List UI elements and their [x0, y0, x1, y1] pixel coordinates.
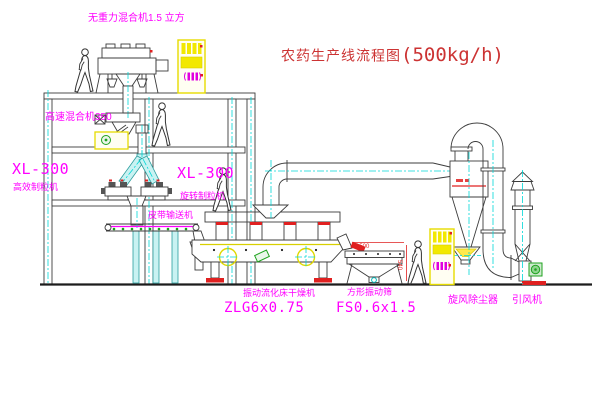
drawing-title: 农药生产线流程图(500kg/h) — [281, 46, 504, 65]
label-dryer-model: ZLG6x0.75 — [224, 301, 304, 315]
label-induced-draft-fan: 引风机 — [512, 296, 542, 306]
label-granulator-left-name: 高效制粒机 — [13, 183, 58, 192]
control-cabinet-top — [178, 40, 205, 93]
cad-process-drawing: 农药生产线流程图(500kg/h) 无重力混合机1.5 立方 高速混合机350 … — [0, 0, 600, 403]
dimension-sieve-height: 540 — [396, 260, 402, 270]
dimension-sieve-length: 1500 — [356, 244, 369, 250]
drawing-title-text: 农药生产线流程图 — [281, 48, 401, 64]
label-belt-conveyor: 皮带输送机 — [148, 211, 193, 220]
person-figure — [152, 103, 170, 146]
fluid-bed-dryer — [190, 205, 345, 283]
belt-conveyor — [105, 224, 205, 283]
person-figure — [408, 241, 426, 284]
discharge-chute — [127, 196, 146, 228]
label-sieve-model: FS0.6x1.5 — [336, 301, 416, 315]
drawing-title-capacity: (500kg/h) — [401, 44, 504, 66]
vibrating-sieve — [337, 234, 407, 284]
granulator-left — [101, 180, 131, 201]
cyclone-separator — [450, 123, 511, 278]
label-gravity-free-mixer: 无重力混合机1.5 立方 — [88, 14, 185, 24]
label-cyclone: 旋风除尘器 — [448, 296, 498, 306]
label-granulator-center-model: XL-300 — [177, 166, 234, 181]
label-sieve-name: 方形振动筛 — [347, 288, 392, 297]
control-cabinet-right — [430, 229, 454, 285]
label-granulator-center-name: 旋转制粒机 — [180, 192, 225, 201]
label-dryer-name: 振动流化床干燥机 — [243, 289, 315, 298]
exhaust-duct — [263, 160, 452, 218]
label-granulator-left-model: XL-300 — [12, 162, 69, 177]
person-figure — [75, 49, 93, 92]
label-high-speed-mixer: 高速混合机350 — [45, 113, 112, 123]
gravity-free-mixer — [96, 44, 168, 118]
